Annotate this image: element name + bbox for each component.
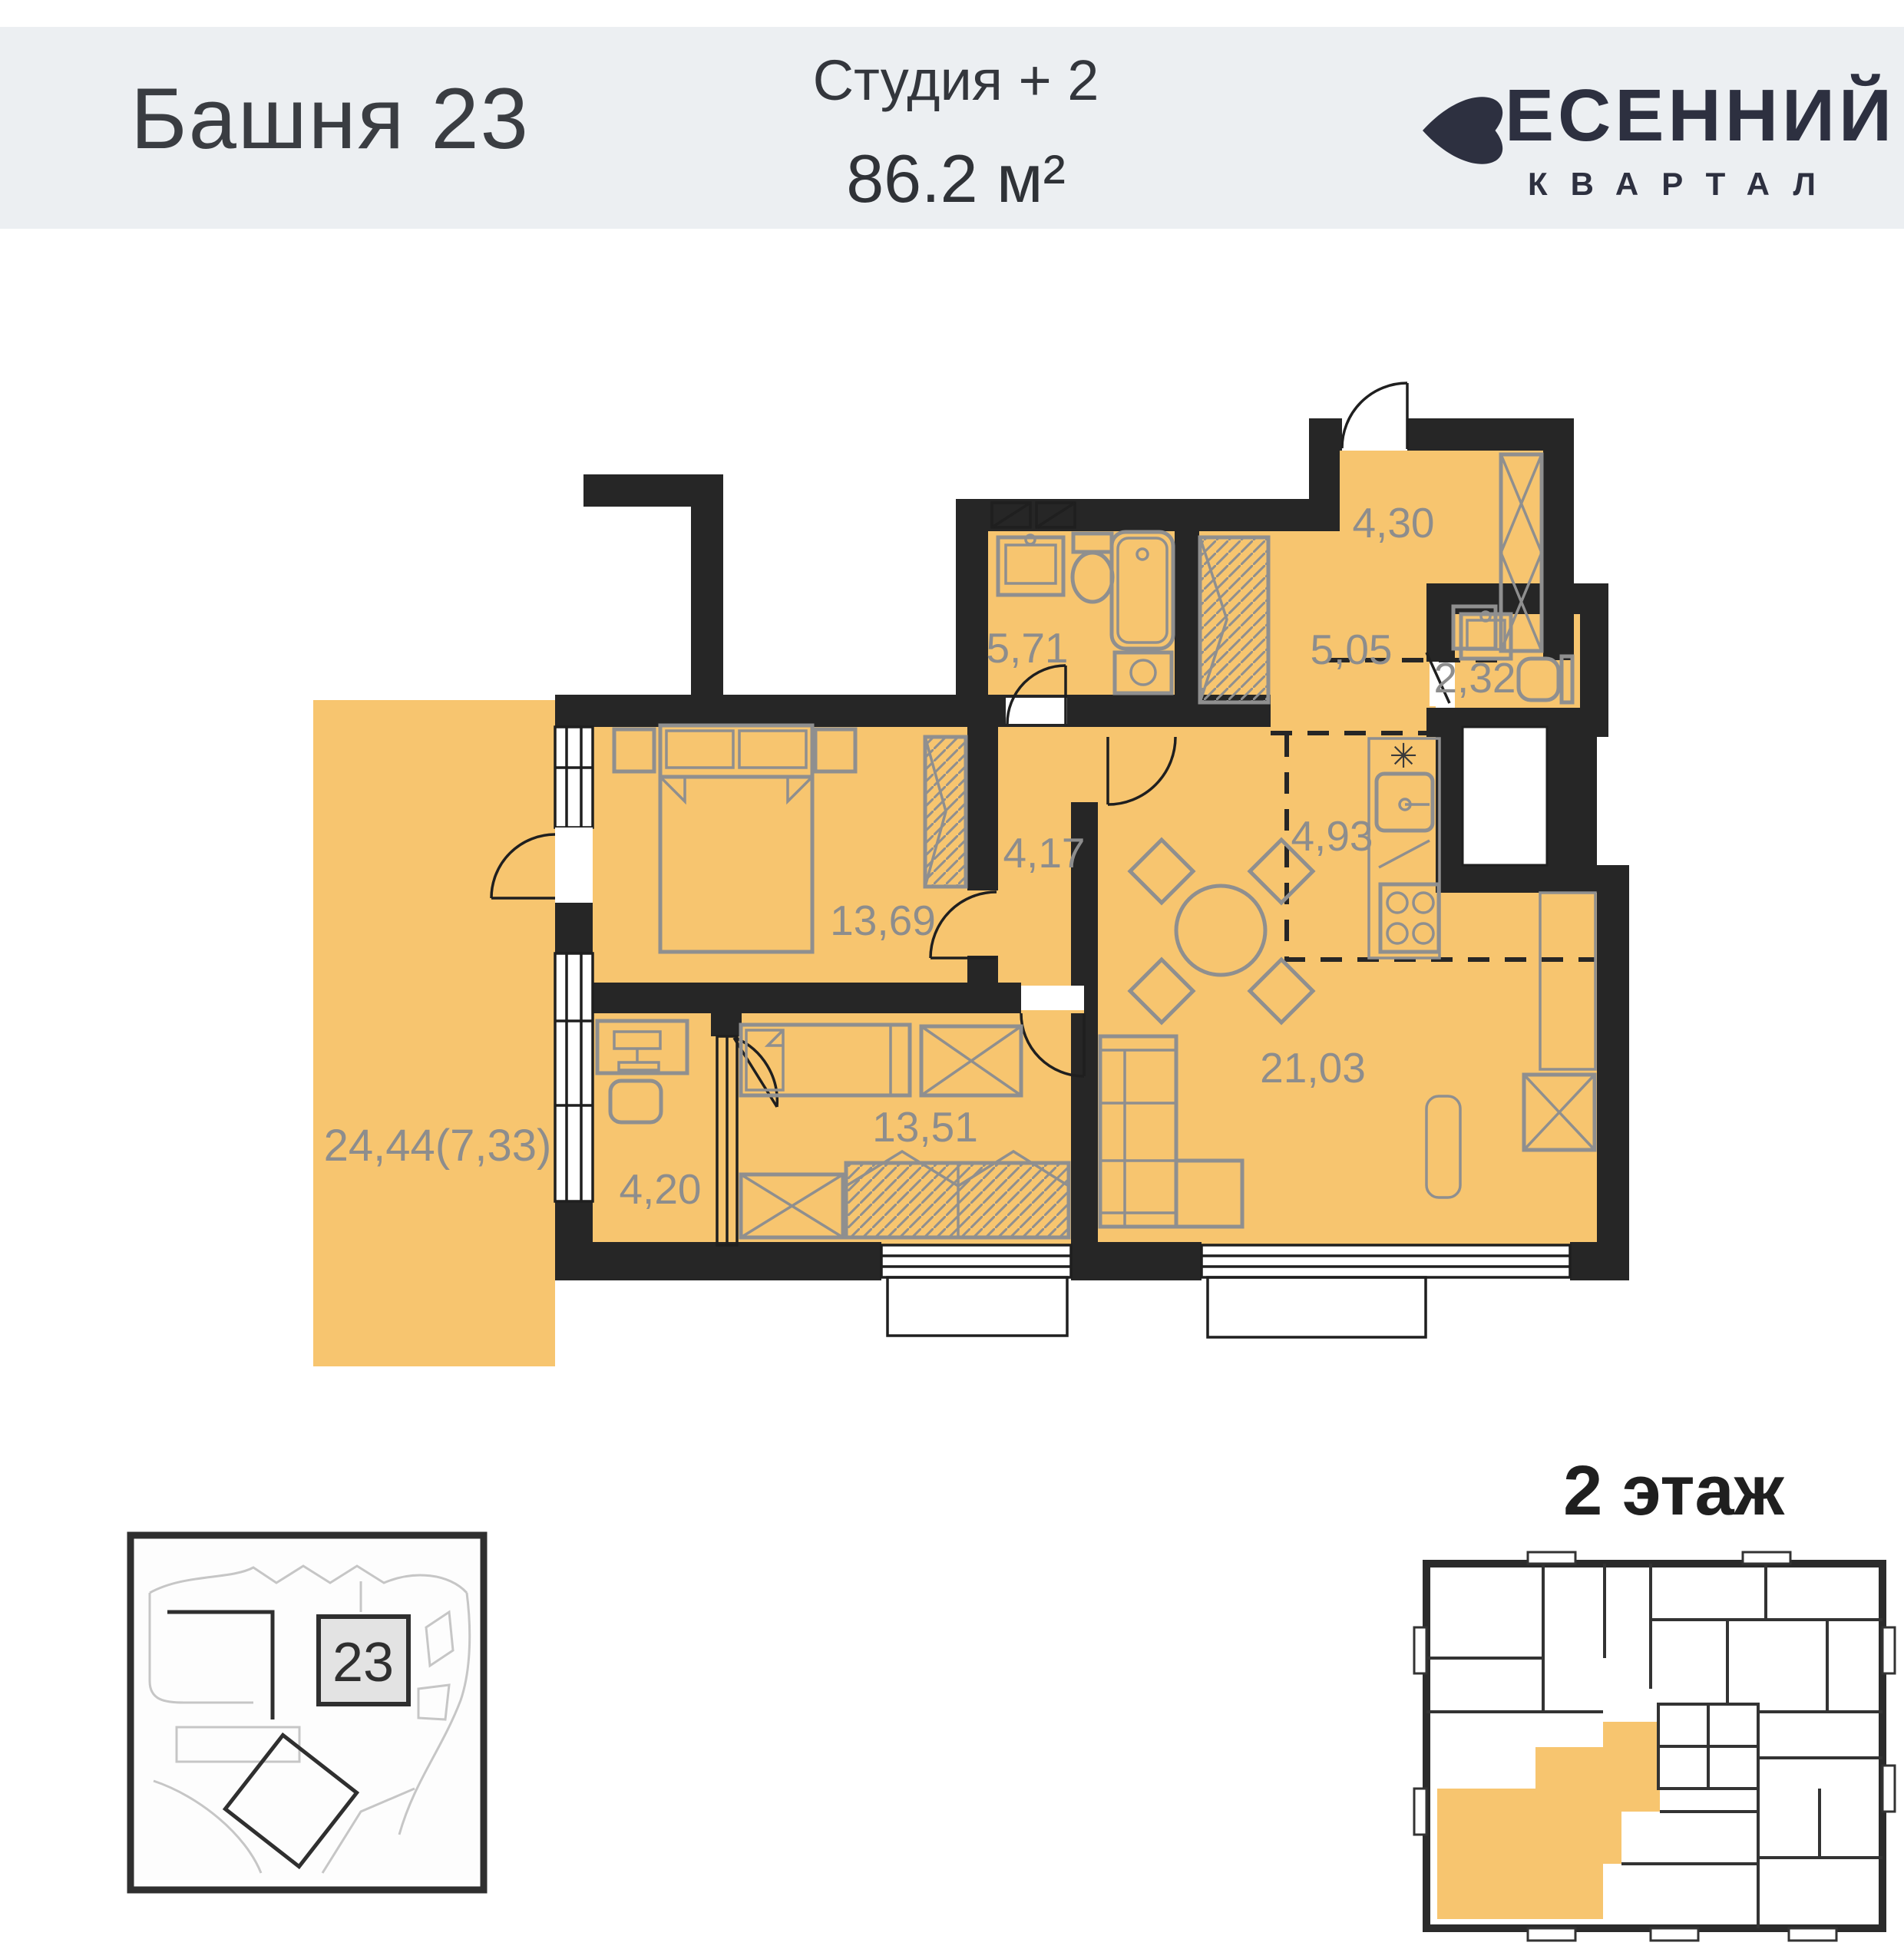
bedroom-wardrobe-icon	[925, 737, 966, 887]
corridor-wardrobe-icon	[1200, 537, 1268, 702]
bedroom-window	[555, 727, 593, 827]
room-label-study: 4,20	[619, 1165, 701, 1213]
shaft-void	[1463, 727, 1547, 865]
window-sill-box	[888, 1277, 1067, 1336]
kids-wardrobe-icon	[846, 1151, 1069, 1237]
terrace-room	[313, 700, 555, 1366]
kids-door-opening	[1021, 986, 1084, 1010]
kids-room-window	[881, 1245, 1071, 1336]
room-label-wc: 2,32	[1433, 654, 1516, 702]
study-window	[555, 953, 593, 1201]
room-label-bedroom: 13,69	[830, 897, 936, 944]
site-map: 23	[131, 1535, 484, 1890]
room-label-kids: 13,51	[872, 1103, 978, 1151]
building-badge-number: 23	[332, 1632, 394, 1693]
building-floor-miniature	[1414, 1552, 1895, 1941]
terrace-door-opening	[555, 827, 593, 903]
room-label-corridor: 5,05	[1310, 626, 1392, 673]
room-label-living: 21,03	[1260, 1044, 1366, 1092]
apartment-plan: 4,30 5,71 5,05 2,32 4,17 4,93 13,69 21,0…	[0, 0, 1904, 1949]
entry-door-opening	[1342, 421, 1407, 451]
room-label-kitchen: 4,93	[1291, 812, 1373, 860]
room-label-entry: 4,30	[1352, 499, 1434, 547]
building-badge: 23	[319, 1617, 408, 1704]
room-label-bathroom: 5,71	[986, 624, 1068, 672]
room-label-terrace: 24,44(7,33)	[324, 1121, 552, 1171]
window-sill-box	[1208, 1277, 1426, 1337]
room-label-hall: 4,17	[1003, 829, 1085, 877]
living-window	[1202, 1245, 1570, 1337]
floor-plan-sheet: Башня 23 Студия + 2 86.2 м² ЕСЕННИЙ КВАР…	[0, 0, 1904, 1949]
bathroom-door-opening	[1006, 698, 1067, 724]
kitchen-vent-icon: ✳	[1390, 738, 1418, 775]
